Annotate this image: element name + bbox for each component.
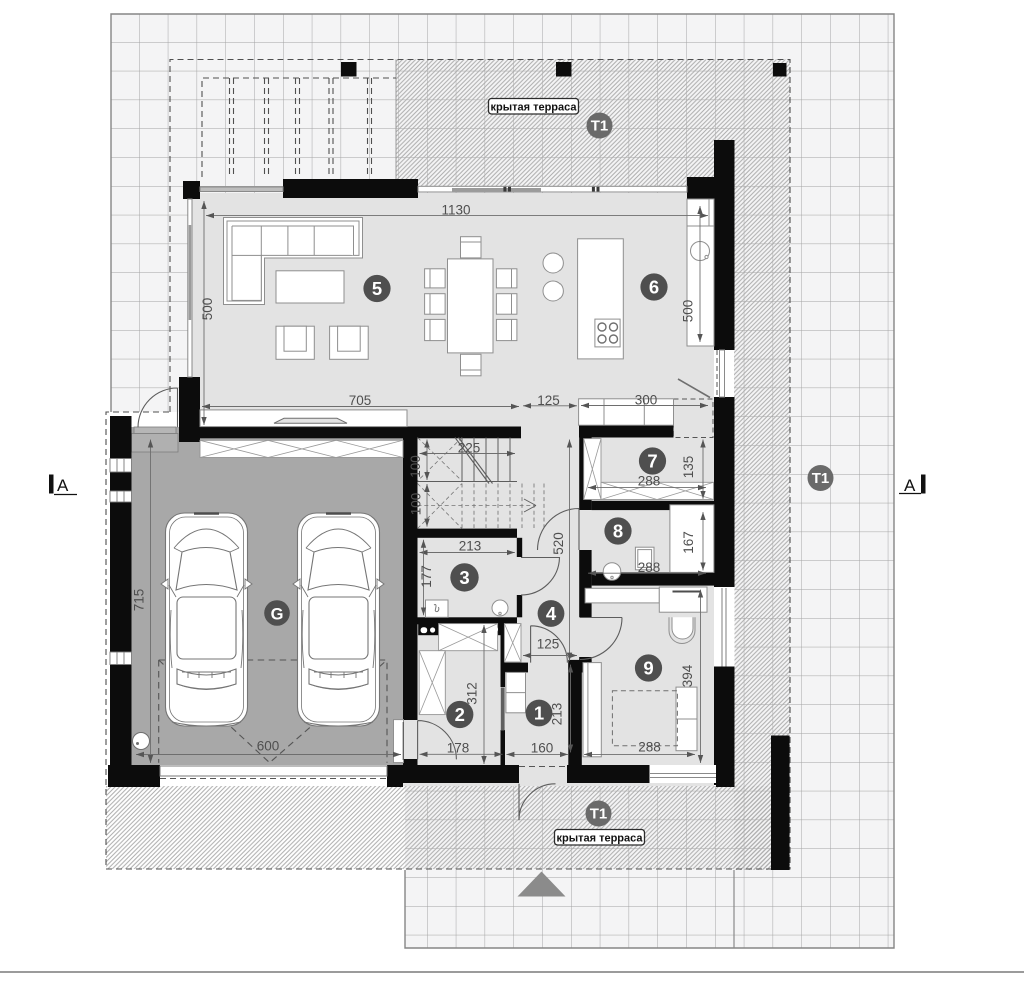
svg-text:177: 177	[419, 565, 434, 588]
svg-text:9: 9	[643, 658, 653, 679]
svg-text:1130: 1130	[441, 203, 470, 218]
svg-text:крытая терраса: крытая терраса	[490, 101, 577, 113]
svg-text:A: A	[57, 476, 69, 495]
svg-text:600: 600	[257, 739, 280, 754]
svg-text:A: A	[904, 476, 916, 495]
svg-text:135: 135	[681, 456, 696, 479]
svg-text:715: 715	[132, 589, 147, 612]
svg-text:125: 125	[537, 637, 560, 652]
svg-text:крытая терраса: крытая терраса	[556, 832, 643, 844]
svg-text:312: 312	[465, 682, 480, 705]
svg-text:1: 1	[534, 703, 544, 724]
svg-text:7: 7	[647, 451, 657, 472]
svg-text:288: 288	[638, 740, 661, 755]
svg-text:T1: T1	[812, 470, 830, 487]
svg-text:300: 300	[635, 393, 658, 408]
svg-text:178: 178	[447, 741, 470, 756]
svg-text:520: 520	[551, 532, 566, 555]
svg-text:125: 125	[537, 393, 560, 408]
svg-text:3: 3	[459, 567, 469, 588]
svg-text:100: 100	[409, 493, 424, 516]
svg-text:500: 500	[200, 298, 215, 321]
svg-text:5: 5	[372, 278, 382, 299]
svg-text:394: 394	[680, 664, 695, 687]
svg-text:288: 288	[638, 560, 661, 575]
svg-text:4: 4	[546, 603, 557, 624]
svg-text:225: 225	[458, 441, 481, 456]
svg-text:G: G	[271, 605, 284, 623]
svg-text:2: 2	[455, 704, 465, 725]
svg-text:8: 8	[613, 521, 623, 542]
svg-text:6: 6	[649, 277, 659, 298]
svg-text:167: 167	[681, 531, 696, 554]
svg-text:T1: T1	[590, 806, 608, 823]
svg-text:100: 100	[408, 455, 423, 478]
svg-text:160: 160	[531, 741, 554, 756]
svg-text:705: 705	[349, 393, 372, 408]
svg-text:213: 213	[459, 539, 482, 554]
svg-text:500: 500	[681, 300, 696, 323]
svg-text:T1: T1	[591, 118, 609, 135]
svg-text:288: 288	[638, 474, 661, 489]
